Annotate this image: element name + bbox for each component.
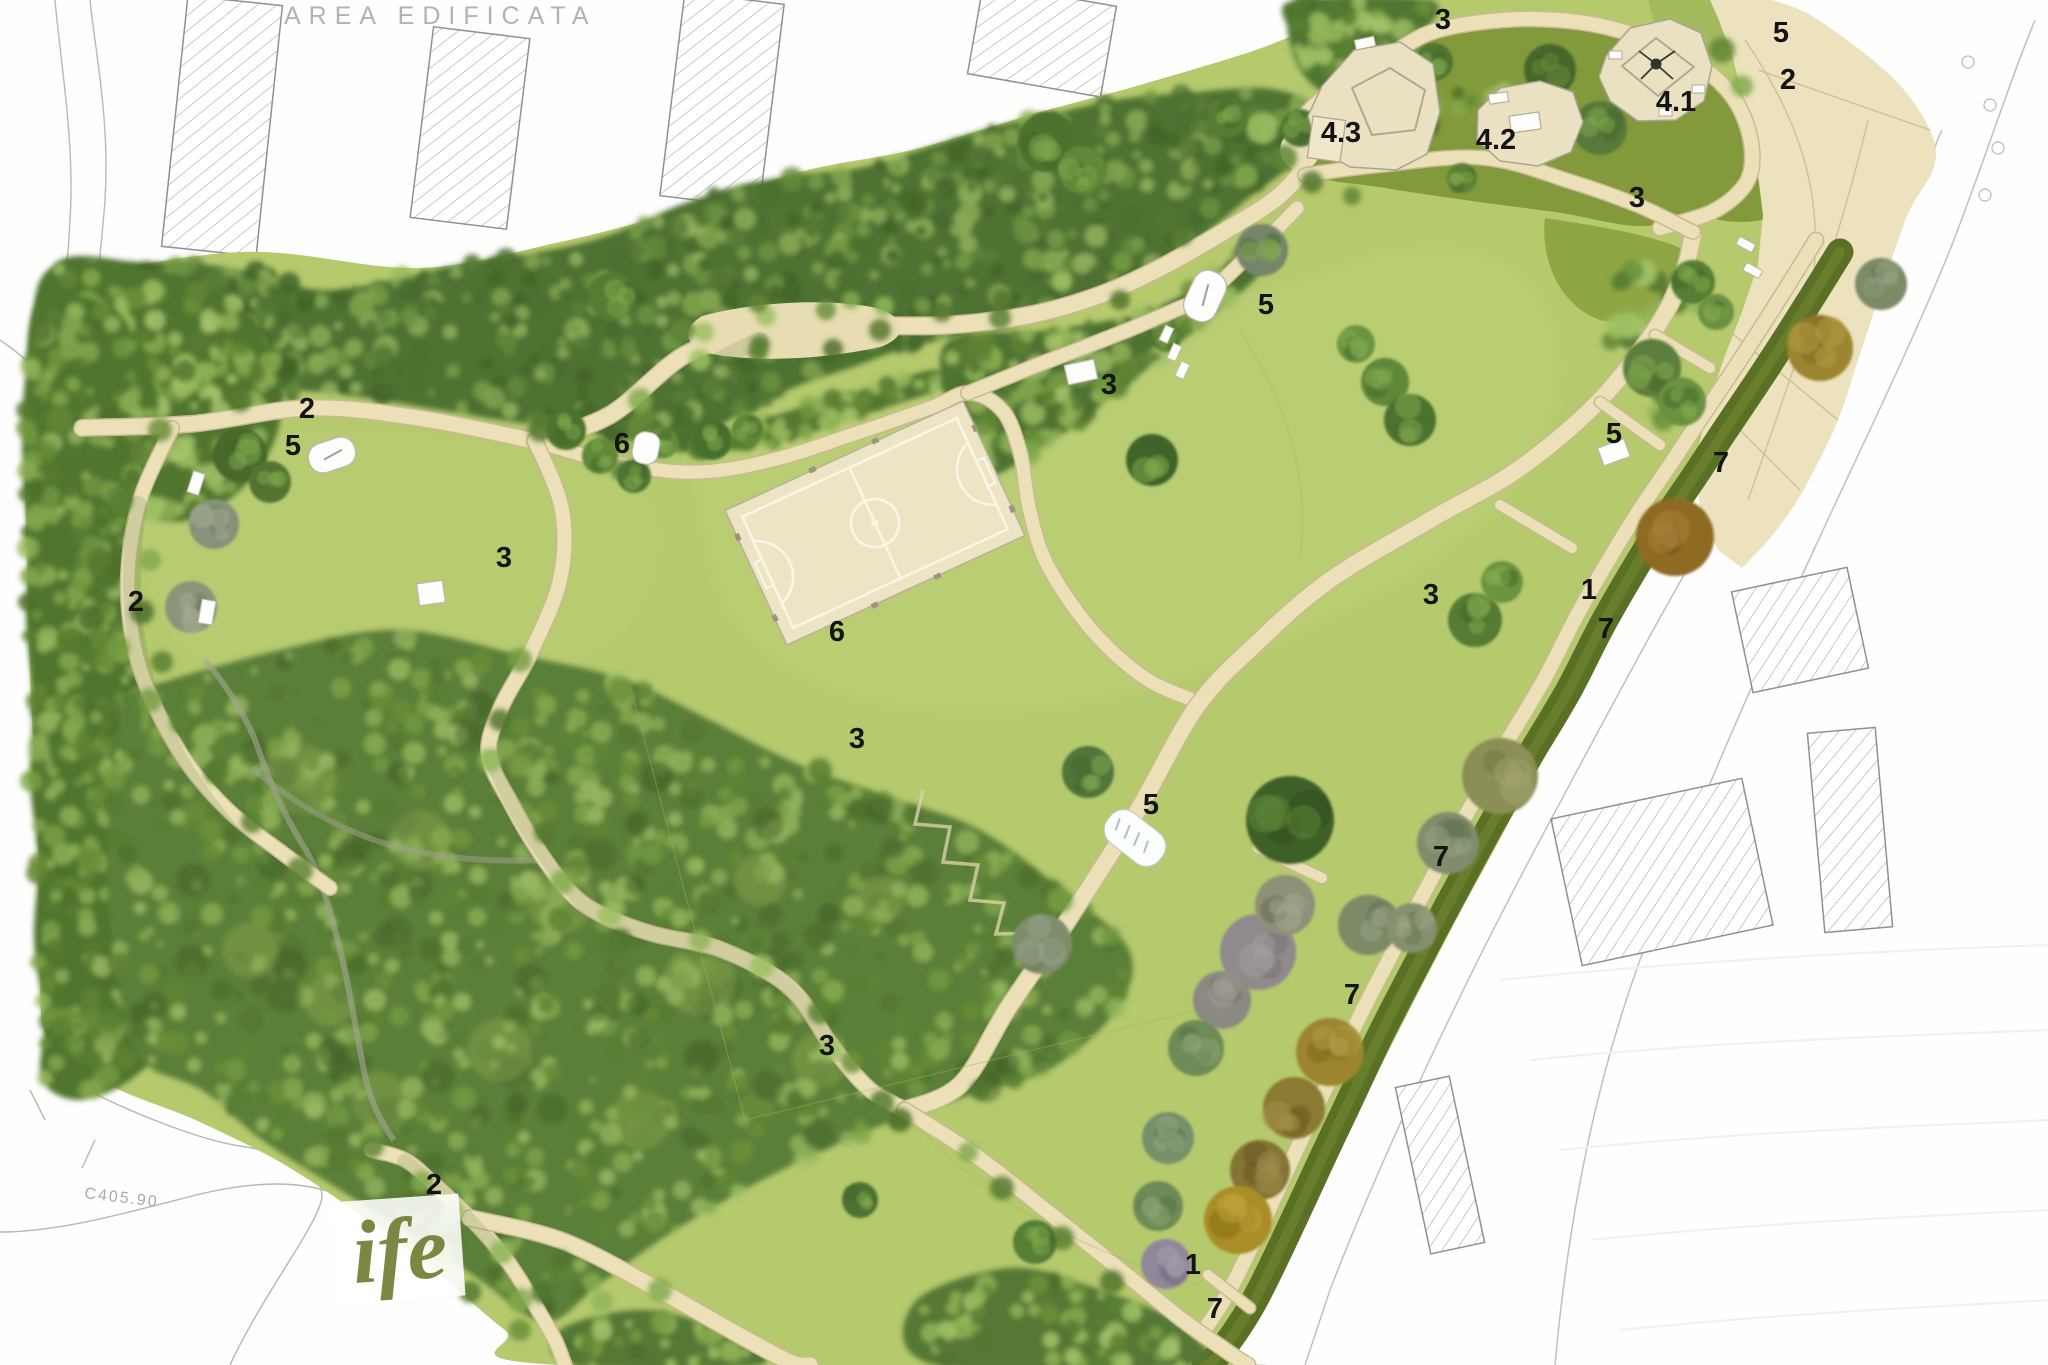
svg-text:6: 6 <box>614 428 630 460</box>
svg-text:AREA EDIFICATA: AREA EDIFICATA <box>284 2 597 30</box>
svg-text:4.2: 4.2 <box>1476 124 1516 156</box>
svg-text:2: 2 <box>299 393 315 425</box>
svg-text:4.3: 4.3 <box>1321 117 1361 149</box>
svg-text:6: 6 <box>829 616 845 648</box>
svg-text:2: 2 <box>1780 64 1796 96</box>
svg-text:2: 2 <box>128 586 144 618</box>
svg-text:7: 7 <box>1433 841 1449 873</box>
svg-text:7: 7 <box>1598 613 1614 645</box>
svg-text:3: 3 <box>849 723 865 755</box>
svg-text:3: 3 <box>1435 4 1451 36</box>
svg-text:7: 7 <box>1344 979 1360 1011</box>
svg-text:5: 5 <box>1773 17 1789 49</box>
svg-text:3: 3 <box>496 542 512 574</box>
svg-text:1: 1 <box>1185 1249 1201 1281</box>
svg-text:5: 5 <box>1143 789 1159 821</box>
svg-text:3: 3 <box>1629 182 1645 214</box>
svg-text:7: 7 <box>1207 1293 1223 1325</box>
svg-text:3: 3 <box>819 1030 835 1062</box>
svg-text:ife: ife <box>349 1198 451 1303</box>
svg-text:3: 3 <box>1101 369 1117 401</box>
svg-text:5: 5 <box>1606 418 1622 450</box>
svg-text:5: 5 <box>1258 289 1274 321</box>
svg-text:7: 7 <box>1713 447 1729 479</box>
svg-text:3: 3 <box>1423 579 1439 611</box>
svg-text:4.1: 4.1 <box>1656 86 1696 118</box>
svg-text:1: 1 <box>1581 574 1597 606</box>
svg-text:5: 5 <box>285 430 301 462</box>
